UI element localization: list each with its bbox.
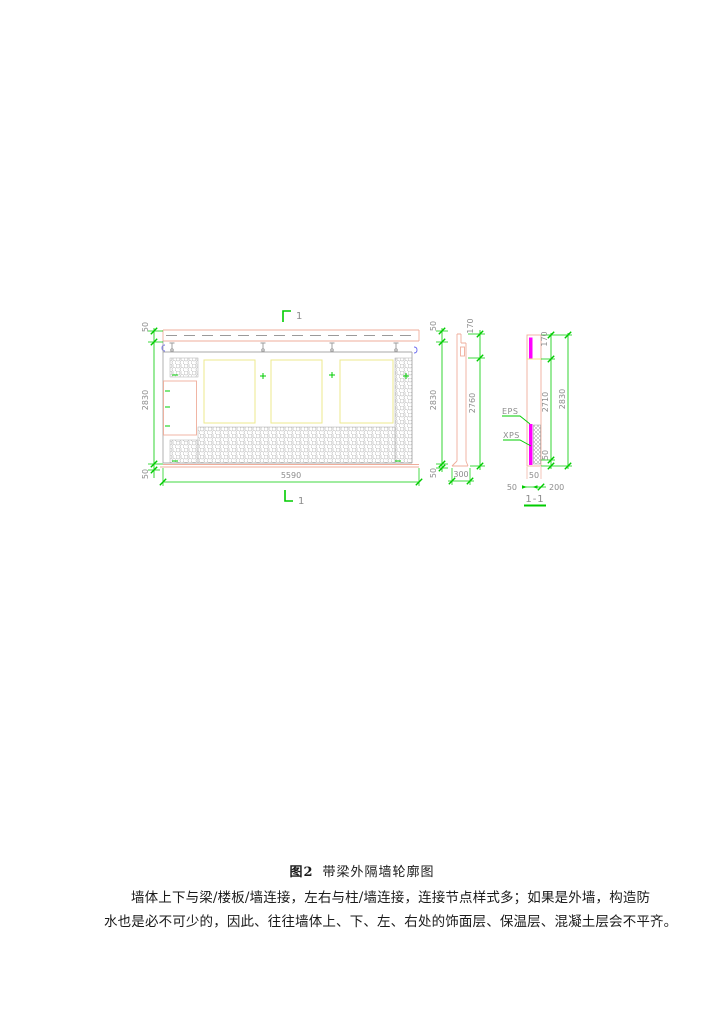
blue-clip-left-icon — [162, 345, 165, 351]
section-mark-bottom: 1 — [285, 490, 304, 507]
dim-sec-bottom: 50 — [429, 468, 438, 478]
dim-section-inner: 2760 — [468, 393, 477, 413]
eps-label: EPS — [502, 407, 518, 416]
elevation-view — [160, 330, 419, 467]
section-mark-top-label: 1 — [296, 311, 302, 322]
finish-strip-top — [529, 338, 533, 359]
detail-title-underline — [524, 505, 546, 507]
dim-elev-top: 50 — [141, 322, 150, 332]
section-mark-top: 1 — [283, 311, 302, 322]
dim-sec-height: 2830 — [429, 390, 438, 410]
dim-elev-width: 5590 — [281, 471, 301, 480]
detail-dims-base: 50 — [527, 467, 541, 480]
beam-outline — [163, 330, 419, 341]
hatch-left-bottom — [170, 440, 198, 463]
eps-strip — [529, 424, 533, 465]
dim-detail-wall: 200 — [549, 483, 564, 492]
dim-detail-inner: 2710 — [541, 392, 550, 412]
masonry-hatch — [170, 358, 412, 463]
hatch-bottom-band — [198, 427, 395, 463]
opening-outline — [164, 381, 197, 435]
xps-label: XPS — [503, 431, 520, 440]
dim-sec-top: 50 — [429, 321, 438, 331]
figure-caption-tag: 图2 — [289, 865, 313, 880]
hatch-right-column — [395, 358, 412, 463]
dim-section-notch: 170 — [466, 318, 475, 333]
detail-title: 1-1 — [524, 494, 546, 507]
panel-2 — [271, 360, 322, 423]
paragraph-line-1: 墙体上下与梁/楼板/墙连接，左右与柱/墙连接，连接节点样式多；如果是外墙，构造防 — [104, 886, 691, 906]
paragraph-line-2: 水也是必不可少的，因此、往往墙体上、下、左、右处的饰面层、保温层、混凝土层会不平… — [104, 910, 664, 930]
panel-outlines — [204, 360, 393, 423]
detail-dims-layers: 50 200 — [507, 483, 564, 492]
section-dims-bottom: 300 — [448, 468, 474, 485]
elevation-dims-right: 50 2830 50 — [429, 321, 448, 478]
dim-detail-finish: 50 — [507, 483, 517, 492]
elevation-dims-left: 50 2830 50 — [141, 322, 163, 479]
panel-3 — [340, 360, 393, 423]
dim-detail-total: 2830 — [558, 389, 567, 409]
base-lines — [160, 465, 419, 468]
joint-markers — [260, 372, 409, 379]
hanger-symbols — [170, 343, 399, 351]
panel-1 — [204, 360, 255, 423]
hatch-left-top — [170, 358, 198, 377]
figure-caption: 图2带梁外隔墙轮廓图 — [0, 861, 724, 880]
dim-detail-base: 50 — [529, 471, 539, 480]
dim-detail-bottom: 50 — [541, 450, 550, 460]
elevation-dims-bottom: 5590 — [160, 468, 422, 486]
dim-elev-bottom: 50 — [141, 469, 150, 479]
figure-drawing: 50 2830 50 5590 1 1 50 2830 50 — [0, 0, 724, 560]
dim-elev-height: 2830 — [141, 390, 150, 410]
detail-dims-right: 170 2710 50 2830 — [540, 331, 572, 469]
figure-caption-title: 带梁外隔墙轮廓图 — [323, 865, 435, 880]
section-profile — [452, 334, 468, 466]
dim-section-width: 300 — [453, 470, 468, 479]
dim-detail-top: 170 — [540, 331, 549, 346]
blue-clip-right-icon — [414, 347, 417, 353]
xps-block — [534, 425, 541, 464]
section-mark-bottom-label: 1 — [298, 496, 304, 507]
detail-title-label: 1-1 — [525, 494, 544, 505]
detail-view: EPS XPS 170 2710 50 2830 50 — [502, 331, 572, 506]
section-view: 170 2760 300 — [448, 318, 485, 485]
section-dims-right: 170 2760 — [466, 318, 485, 470]
eps-leader — [502, 416, 530, 424]
